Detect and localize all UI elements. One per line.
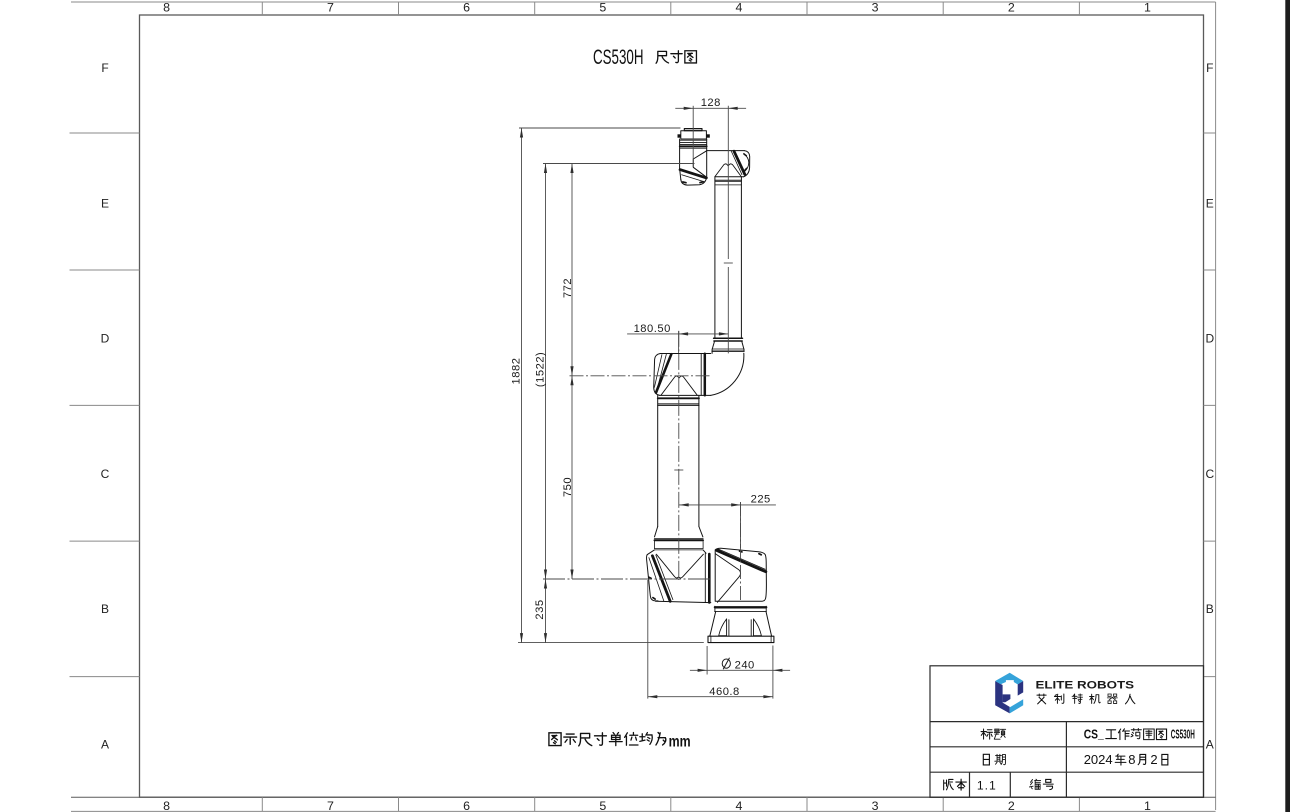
svg-text:460.8: 460.8	[709, 686, 740, 698]
svg-text:D: D	[101, 332, 110, 346]
svg-text:E: E	[1206, 196, 1214, 210]
svg-text:C: C	[1205, 467, 1214, 481]
svg-text:2024: 2024	[1084, 752, 1113, 767]
svg-text:F: F	[1206, 61, 1213, 75]
svg-text:7: 7	[327, 0, 334, 14]
svg-text:A: A	[1206, 738, 1214, 752]
svg-text:772: 772	[562, 278, 574, 298]
svg-text:180.50: 180.50	[634, 323, 671, 335]
svg-text:1: 1	[1144, 0, 1151, 14]
svg-text:8: 8	[1128, 752, 1135, 767]
svg-text:1: 1	[1144, 799, 1151, 812]
svg-text:1.1: 1.1	[977, 778, 997, 792]
svg-text:5: 5	[599, 0, 606, 14]
svg-text:3: 3	[872, 799, 879, 812]
svg-text:6: 6	[463, 799, 470, 812]
svg-text:8: 8	[163, 0, 170, 14]
svg-text:CS_: CS_	[1084, 727, 1105, 742]
svg-text:2: 2	[1150, 752, 1157, 767]
svg-text:A: A	[101, 738, 109, 752]
svg-text:240: 240	[735, 659, 755, 671]
svg-text:7: 7	[327, 799, 334, 812]
svg-text:CS530H: CS530H	[593, 46, 644, 69]
svg-text:B: B	[1206, 602, 1214, 616]
svg-text:5: 5	[599, 799, 606, 812]
svg-text:2: 2	[1008, 0, 1015, 14]
svg-text:235: 235	[534, 599, 546, 619]
svg-text:ELITE ROBOTS: ELITE ROBOTS	[1036, 680, 1135, 692]
svg-text:4: 4	[735, 0, 742, 14]
svg-text:C: C	[101, 467, 110, 481]
svg-text:4: 4	[735, 799, 742, 812]
svg-text:(1522): (1522)	[534, 352, 546, 387]
svg-text:6: 6	[463, 0, 470, 14]
svg-text:CS530H: CS530H	[1171, 727, 1195, 742]
svg-text:225: 225	[751, 494, 771, 506]
svg-text:750: 750	[562, 477, 574, 497]
svg-text:1882: 1882	[511, 358, 523, 385]
svg-text:D: D	[1205, 332, 1214, 346]
svg-text:2: 2	[1008, 799, 1015, 812]
svg-text:E: E	[101, 196, 109, 210]
svg-text:B: B	[101, 602, 109, 616]
svg-text:8: 8	[163, 799, 170, 812]
svg-text:128: 128	[701, 97, 721, 109]
svg-text:F: F	[101, 61, 108, 75]
svg-text:3: 3	[872, 0, 879, 14]
svg-text:mm: mm	[669, 734, 691, 751]
